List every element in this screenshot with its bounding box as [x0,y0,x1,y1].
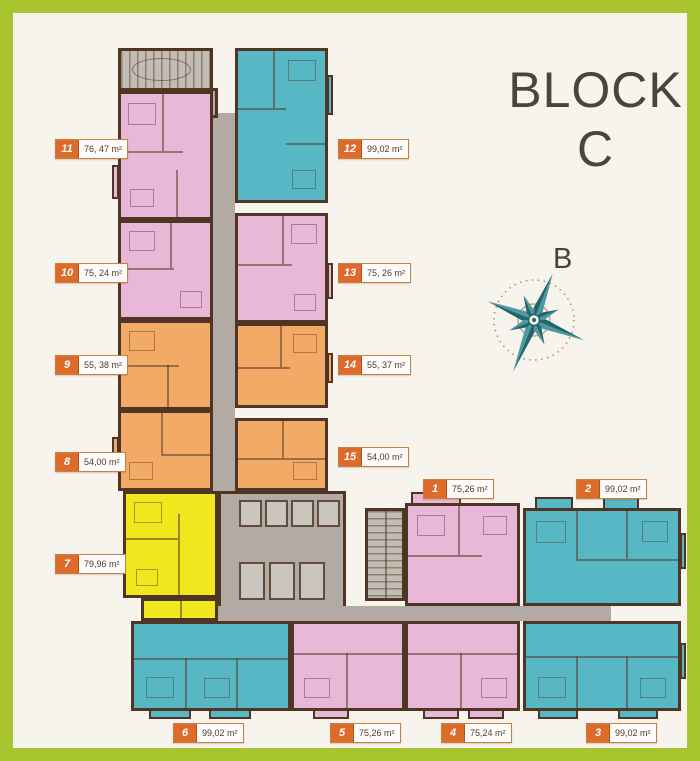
unit-14-shape [235,323,328,408]
unit-label-2: 2 99,02 m² [576,479,647,499]
service-core [218,491,346,625]
unit-area: 75,26 m² [354,724,400,742]
unit-area: 99,02 m² [197,724,243,742]
stair-loop [132,58,191,81]
unit-label-9: 9 55, 38 m² [55,355,128,375]
unit-area: 75,26 m² [447,480,493,498]
balcony [327,263,333,299]
unit-number: 3 [587,724,610,742]
unit-label-11: 11 76, 47 m² [55,139,128,159]
unit-area: 76, 47 m² [79,140,127,158]
unit-13-shape [235,213,328,323]
balcony [618,709,658,719]
unit-number: 7 [56,555,79,573]
floorplan: 11 76, 47 m² 10 75, 24 m² 9 55, 38 m² 8 … [13,13,687,748]
unit-label-15: 15 54,00 m² [338,447,409,467]
unit-2-shape [523,508,681,606]
stairwell-north [118,48,213,91]
elevator-shaft [269,562,295,600]
unit-10-shape [118,220,213,320]
unit-label-1: 1 75,26 m² [423,479,494,499]
balcony [535,497,573,510]
corridor-horizontal [218,606,611,621]
unit-3-shape [523,621,681,711]
unit-label-3: 3 99,02 m² [586,723,657,743]
unit-number: 11 [56,140,79,158]
balcony [112,165,119,199]
unit-number: 8 [56,453,79,471]
balcony [209,709,251,719]
elevator-shaft [317,500,340,527]
unit-area: 75,24 m² [465,724,511,742]
unit-1-shape [405,503,520,606]
balcony [327,75,333,115]
unit-area: 54,00 m² [362,448,408,466]
unit-label-7: 7 79,96 m² [55,554,126,574]
unit-6-shape [131,621,291,711]
unit-area: 55, 37 m² [362,356,410,374]
balcony [313,709,349,719]
unit-label-6: 6 99,02 m² [173,723,244,743]
unit-number: 12 [339,140,362,158]
balcony [468,709,504,719]
unit-number: 13 [339,264,362,282]
unit-label-14: 14 55, 37 m² [338,355,411,375]
unit-area: 99,02 m² [600,480,646,498]
unit-number: 4 [442,724,465,742]
unit-label-5: 5 75,26 m² [330,723,401,743]
unit-5-shape [291,621,405,711]
unit-number: 2 [577,480,600,498]
elevator-shaft [265,500,288,527]
stairwell-east [365,508,405,601]
balcony [680,533,686,569]
unit-area: 75, 26 m² [362,264,410,282]
unit-area: 55, 38 m² [79,356,127,374]
unit-area: 75, 24 m² [79,264,127,282]
balcony [680,643,686,679]
unit-9-shape [118,320,213,410]
unit-8-shape [118,410,213,491]
unit-number: 1 [424,480,447,498]
unit-12-shape [235,48,328,203]
block-title-line1: BLOCK [508,61,683,120]
compass-rose-icon [474,260,594,380]
block-title-line2: C [508,120,683,179]
page-frame: 11 76, 47 m² 10 75, 24 m² 9 55, 38 m² 8 … [0,0,700,761]
unit-number: 5 [331,724,354,742]
unit-7-shape [123,491,218,598]
elevator-shaft [239,500,262,527]
unit-7-shape-lower [141,598,218,621]
unit-area: 99,02 m² [610,724,656,742]
unit-number: 15 [339,448,362,466]
elevator-shaft [291,500,314,527]
unit-label-4: 4 75,24 m² [441,723,512,743]
unit-label-8: 8 54,00 m² [55,452,126,472]
unit-label-13: 13 75, 26 m² [338,263,411,283]
unit-label-10: 10 75, 24 m² [55,263,128,283]
unit-area: 79,96 m² [79,555,125,573]
unit-4-shape [405,621,520,711]
balcony [327,353,333,383]
unit-number: 14 [339,356,362,374]
unit-number: 10 [56,264,79,282]
balcony [423,709,459,719]
unit-15-shape [235,418,328,491]
unit-11-shape [118,91,213,220]
unit-area: 54,00 m² [79,453,125,471]
elevator-shaft [299,562,325,600]
unit-label-12: 12 99,02 m² [338,139,409,159]
unit-number: 9 [56,356,79,374]
balcony [149,709,191,719]
balcony [538,709,578,719]
block-title: BLOCK C [508,61,683,179]
unit-number: 6 [174,724,197,742]
elevator-shaft [239,562,265,600]
unit-area: 99,02 m² [362,140,408,158]
